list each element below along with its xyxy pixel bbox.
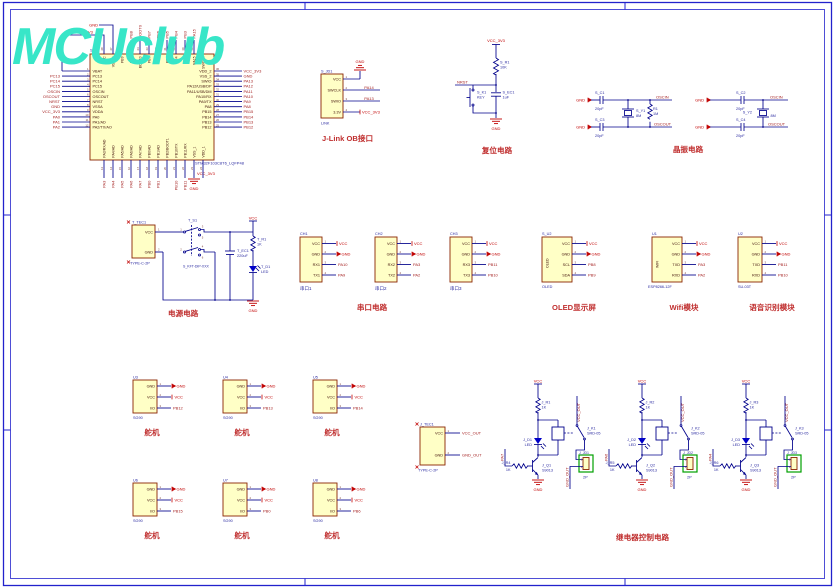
pin-name: RX3 <box>463 263 470 267</box>
pin-name: GND <box>145 250 154 254</box>
pin-number: 3 <box>340 404 342 408</box>
pin-name: RX2 <box>388 263 395 267</box>
servo-part: SG90 <box>223 519 233 523</box>
pin-number: 3 <box>765 260 767 264</box>
transistor-icon <box>527 458 538 476</box>
gnd-arrow-icon <box>587 252 590 257</box>
net-label: PB10 <box>173 180 178 191</box>
pin-name: VCC <box>237 498 245 502</box>
transistor-designator: J_Q3 <box>750 464 759 468</box>
pin-number: 1 <box>250 485 252 489</box>
pin-name: VSSA <box>93 105 104 109</box>
pin-name: VCC <box>145 230 153 234</box>
cap-value: 220uF <box>237 254 248 258</box>
net-label: PA4 <box>110 180 115 188</box>
net-label: VCC <box>339 241 348 246</box>
pin-number: 26 <box>216 118 220 122</box>
connector-designator: J_JD1 <box>579 451 589 455</box>
cap-designator: S_C4 <box>736 118 746 122</box>
cap-designator: T_EC1 <box>237 249 249 253</box>
resistor-designator: J_R2 <box>646 401 655 405</box>
pin-number: 2 <box>575 250 577 254</box>
pin-name: GND <box>672 252 681 256</box>
relay-part: SRD-05 <box>587 432 601 436</box>
net-label: GND <box>492 251 501 256</box>
pin-name: GND <box>462 252 471 256</box>
pin-number: 30 <box>216 98 220 102</box>
pin-number: 3 <box>475 260 477 264</box>
pin-name: PC15 <box>93 85 103 89</box>
jlink-pin-1: VCC 1 GND <box>333 59 366 81</box>
pin-number: 3 <box>160 507 162 511</box>
pin-name: PA7/AD <box>139 145 143 158</box>
led-designator: J_D2 <box>627 438 636 442</box>
pin-name: PB11/RX <box>184 143 188 158</box>
net-label: OSCOUT <box>654 121 672 126</box>
pin-number: 4 <box>685 271 687 275</box>
wifi-part: ESP8266-12F <box>648 285 673 289</box>
pin-name: TX1 <box>313 273 320 277</box>
servo-title: 舵机 <box>144 530 160 540</box>
gnd-arrow-icon <box>588 98 591 103</box>
servo-connector: U5 GND VCC I/O 1 2 3 GND VCC PB14 SG90 舵… <box>313 376 366 438</box>
pin-number: 1 <box>160 382 162 386</box>
relay-part: SRD-05 <box>795 432 809 436</box>
jlink-block: S_JD1 LINK VCC 1 GND SWCLK 2 PA14 SWIO 3… <box>321 59 381 143</box>
pin-name: OSCOUT <box>93 95 110 99</box>
resistor-value: 1K <box>714 468 719 472</box>
serial-connectors: CH1 VCC GND RX1 TX1 1 2 3 4 VCC GND PA10… <box>300 232 501 292</box>
pin-name: VCC <box>147 498 155 502</box>
resistor-value: 1M <box>653 112 658 116</box>
pin-name: GND <box>237 384 246 388</box>
serial-block: CH1 VCC GND RX1 TX1 1 2 3 4 VCC GND PA10… <box>300 232 501 312</box>
servo-part: SG90 <box>133 416 143 420</box>
relay-title: 继电器控制电路 <box>616 532 670 542</box>
net-label: PA6 <box>128 180 133 188</box>
connector-value: 2P <box>687 476 692 480</box>
pin-number: 10 <box>85 113 89 117</box>
pin-name: GND <box>435 453 444 457</box>
relay-coil-icon <box>760 427 772 440</box>
net-label: PB0 <box>263 508 271 513</box>
servo-designator: U7 <box>223 479 228 483</box>
gnd-symbol-icon <box>636 480 648 485</box>
net-label: PB6 <box>353 508 361 513</box>
relay-channel: VCC J_R3 1K J_D3 LED VCC_OUT J_K3 SRD-05 <box>708 379 809 493</box>
serial-connector: CH2 VCC GND RX2 TX2 1 2 3 4 VCC GND PA3 … <box>375 232 426 292</box>
pin-name: GND <box>752 252 761 256</box>
pin-name: I/O <box>330 406 335 410</box>
net-label: VCC_OUT <box>680 402 685 422</box>
pin-name: VCC <box>672 242 680 246</box>
pin-number: 2 <box>448 451 450 455</box>
resistor-icon <box>640 398 644 413</box>
net-label: GND <box>342 251 351 256</box>
net-label: PA6 <box>604 453 609 461</box>
jlink-title: J-Link OB接口 <box>322 133 373 143</box>
pin-number: 24 <box>199 166 203 170</box>
net-label: VCC <box>265 497 274 502</box>
net-label: PB11 <box>488 262 498 267</box>
net-label: VCC <box>589 241 598 246</box>
x-marker-icon <box>416 423 419 426</box>
pin-number: 3 <box>250 404 252 408</box>
oled-block: S_U2 OLED VCC GND SCL SDA 1 2 3 4 VCC GN… <box>542 232 601 312</box>
servo-designator: U5 <box>313 376 318 380</box>
pin-number: 4 <box>765 271 767 275</box>
relay-part: SRD-05 <box>691 432 705 436</box>
vcc-net-label: VCC_3V3 <box>197 171 216 176</box>
mcu-bottom-power: GND VCC_3V3 <box>188 171 216 191</box>
net-label: VCC_3V3 <box>362 109 381 114</box>
pin-name: VCC <box>327 498 335 502</box>
pin-number: 1 <box>250 382 252 386</box>
pin-name: GND <box>562 252 571 256</box>
net-label: GND <box>357 383 366 388</box>
gnd-net-label: GND <box>695 124 704 129</box>
typec-part: TYPE-C-2P <box>130 262 150 266</box>
x-marker-icon <box>416 466 419 469</box>
gnd-symbol-icon <box>354 65 366 70</box>
net-label: PA3 <box>698 262 706 267</box>
transistor-part: S9013 <box>646 469 657 473</box>
cap-value: 20pF <box>595 107 604 111</box>
pin-number: 3 <box>575 260 577 264</box>
servo-part: SG90 <box>223 416 233 420</box>
voice-part: SU-03T <box>738 285 752 289</box>
connector-designator: J_JD3 <box>787 451 797 455</box>
servo-designator: U6 <box>133 479 138 483</box>
connector-designator: CH2 <box>375 232 383 236</box>
crystal-right: GND S_C2 20pF OSCIN GND S_C4 20pF OSCOUT… <box>695 91 788 138</box>
pin-number: 2 <box>158 248 160 252</box>
pin-number: 3 <box>250 507 252 511</box>
net-label: PA10 <box>338 262 348 267</box>
pin-name: VCC <box>333 77 341 81</box>
led-icon <box>534 438 546 449</box>
net-label: PB9 <box>588 272 596 277</box>
cap-designator: S_C1 <box>595 91 605 95</box>
pin-name: VDDA <box>93 110 104 114</box>
resistor-icon <box>251 236 255 251</box>
relay-connector-body <box>583 458 589 470</box>
resistor-icon <box>720 464 736 468</box>
connector-designator: CH3 <box>450 232 458 236</box>
typec-designator: T_TEC1 <box>132 221 146 225</box>
resistor-value: 1K <box>542 406 547 410</box>
crystal-value: 8M <box>636 114 641 118</box>
gnd-symbol-icon <box>247 301 259 306</box>
gnd-arrow-icon <box>487 252 490 257</box>
voice-designator: U2 <box>738 232 743 236</box>
pin-number: 25 <box>216 123 220 127</box>
jlink-part: LINK <box>321 121 330 125</box>
pin-number: 34 <box>216 77 220 81</box>
gnd-arrow-icon <box>337 252 340 257</box>
gnd-net-label: GND <box>576 97 585 102</box>
servo-connector: U4 GND VCC I/O 1 2 3 GND VCC PB13 SG90 舵… <box>223 376 276 438</box>
gnd-arrow-icon <box>262 487 265 492</box>
servo-designator: U3 <box>133 376 138 380</box>
pin-name: VCC <box>387 242 395 246</box>
led-icon <box>249 266 261 273</box>
gnd-net-label: GND <box>638 487 647 492</box>
vcc-net-label: VCC <box>249 216 258 221</box>
net-label: PA4 <box>708 453 713 461</box>
pin-name: VCC <box>462 242 470 246</box>
gnd-net-label: GND <box>356 59 365 64</box>
led-designator: J_D3 <box>731 438 740 442</box>
net-label: GND_OUT <box>668 467 673 487</box>
transistor-icon <box>631 458 642 476</box>
pin-name: PA11/USB/DM <box>187 90 212 94</box>
resistor-icon <box>494 58 499 75</box>
pin-number: 3 <box>685 260 687 264</box>
servo-connector: U6 GND VCC I/O 1 2 3 GND VCC PB15 SG90 舵… <box>133 479 186 541</box>
pin-name: VCC <box>237 395 245 399</box>
connector-label: 串口3 <box>450 286 462 292</box>
pin-number: 1 <box>180 228 182 232</box>
servo-connector: U8 GND VCC I/O 1 2 3 GND VCC PB6 SG90 舵机 <box>313 479 366 541</box>
gnd-arrow-icon <box>588 125 591 130</box>
pin-name: GND <box>327 487 336 491</box>
servo-row-1: U3 GND VCC I/O 1 2 3 GND VCC PB12 SG90 舵… <box>133 376 366 438</box>
pin-name: PB0/AD <box>148 145 152 158</box>
x-marker-icon <box>127 221 130 224</box>
transistor-designator: J_Q2 <box>646 464 655 468</box>
pin-number: 6 <box>202 256 204 260</box>
pin-name: I/O <box>330 509 335 513</box>
resistor-designator: J_R3 <box>750 401 759 405</box>
pin-number: 16 <box>127 166 131 170</box>
pin-name: VSS_1 <box>193 147 197 158</box>
net-label: PA13 <box>364 96 374 101</box>
pin-number: 1 <box>765 239 767 243</box>
pin-name: VCC <box>312 242 320 246</box>
pin-number: 1 <box>158 228 160 232</box>
net-label: GND_OUT <box>462 452 482 457</box>
net-label: GND_OUT <box>772 467 777 487</box>
serial-title: 串口电路 <box>357 302 388 312</box>
switch-part: S_KFT-DIP-XXX <box>183 265 210 269</box>
pin-number: 2 <box>340 393 342 397</box>
pin-number: 2 <box>180 248 182 252</box>
resistor-designator: T_R1 <box>257 238 266 242</box>
connector-value: 2P <box>791 476 796 480</box>
power-title: 电源电路 <box>168 308 199 318</box>
net-label: PA7 <box>137 180 142 188</box>
servo-part: SG90 <box>313 416 323 420</box>
gnd-net-label: GND <box>742 487 751 492</box>
net-label: VCC_OUT <box>462 430 482 435</box>
vcc-net-label: VCC <box>638 379 647 384</box>
pin-name: PC14 <box>93 80 103 84</box>
pin-name: SCL <box>563 263 570 267</box>
net-label: VCC <box>699 241 708 246</box>
net-label: VCC <box>489 241 498 246</box>
pin-number: 2 <box>160 393 162 397</box>
pin-number: 2 <box>340 496 342 500</box>
crystal-left: GND S_C1 20pF OSCIN GND S_C3 20pF OSCOUT… <box>576 91 672 138</box>
resistor-icon <box>536 398 540 413</box>
oled-title: OLED显示屏 <box>552 303 596 312</box>
pin-name: VCC <box>752 242 760 246</box>
crystal-title: 晶振电路 <box>673 144 704 154</box>
net-label: PA3 <box>101 180 106 188</box>
pin-name: PA9/TX <box>199 100 212 104</box>
pin-name: SWIO <box>331 99 341 103</box>
resistor-designator: S_R1 <box>500 61 510 65</box>
wifi-vertical-label: WIFI <box>656 261 660 268</box>
net-label: PB11 <box>182 180 187 190</box>
pin-name: PA12/USB/DP <box>187 85 212 89</box>
connector-value: 2P <box>583 476 588 480</box>
switch-designator: T_S1 <box>188 219 197 223</box>
gnd-net-label: GND <box>695 97 704 102</box>
pin-name: PB2/BOOT1 <box>166 138 170 158</box>
gnd-arrow-icon <box>262 384 265 389</box>
pin-number: 27 <box>216 113 220 117</box>
pin-name: NRST <box>93 100 104 104</box>
pin-number: 3 <box>340 507 342 511</box>
pin-name: SWCLK <box>327 88 341 92</box>
typec-part: TYPE-C-2P <box>418 469 438 473</box>
resistor-icon <box>744 398 748 413</box>
net-label: PA2 <box>698 272 706 277</box>
mcu-part-label: STM32F103C8T6_LQFP48 <box>195 161 245 166</box>
net-label: GND <box>267 486 276 491</box>
gnd-arrow-icon <box>697 252 700 257</box>
net-label: PB14 <box>353 405 364 410</box>
net-label: PB15 <box>173 508 184 513</box>
connector-designator: J_JD2 <box>683 451 693 455</box>
jlink-designator: S_JD1 <box>321 70 332 74</box>
net-label: PB10 <box>488 272 499 277</box>
servo-designator: U8 <box>313 479 318 483</box>
pin-name: OSCIN <box>93 90 105 94</box>
pin-number: 1 <box>400 239 402 243</box>
pin-name: GND <box>327 384 336 388</box>
pin-name: TX2 <box>388 273 395 277</box>
key-value: KEY <box>477 96 485 100</box>
relay-designator: J_K1 <box>587 427 596 431</box>
pin-name: PA1/AD <box>93 120 106 124</box>
gnd-arrow-icon <box>172 487 175 492</box>
pin-number: 1 <box>346 75 348 79</box>
connector-designator: CH1 <box>300 232 308 236</box>
pin-number: 4 <box>400 271 402 275</box>
net-label: VCC <box>265 394 274 399</box>
cap-designator: S_EC1 <box>503 91 515 95</box>
pin-name: PB12 <box>202 126 211 130</box>
net-label: PA14 <box>364 85 374 90</box>
voice-block: U2 VCC GND TXD RXD 1 2 3 4 VCC GND PB11 … <box>738 232 795 312</box>
pin-number: 2 <box>160 496 162 500</box>
pin-number: 33 <box>216 83 220 87</box>
vcc-net-label: VCC <box>742 379 751 384</box>
net-label: GND <box>177 383 186 388</box>
gnd-net-label: GND <box>492 126 501 131</box>
relay-typec-block: J_TEC1 TYPE-C-2P VCC GND 1 2 VCC_OUT GND… <box>416 423 483 473</box>
transistor-icon <box>735 458 746 476</box>
crystal-value: 8M <box>771 114 776 118</box>
pin-number: 3 <box>325 260 327 264</box>
pin-number: 2 <box>346 86 348 90</box>
serial-connector: CH3 VCC GND RX3 TX3 1 2 3 4 VCC GND PB11… <box>450 232 501 292</box>
pin-name: VCC <box>435 431 443 435</box>
servo-row-2: U6 GND VCC I/O 1 2 3 GND VCC PB15 SG90 舵… <box>133 479 366 541</box>
net-label: VCC <box>175 394 184 399</box>
vcc-net-label: VCC <box>534 379 543 384</box>
pin-number: 2 <box>250 393 252 397</box>
pin-number: 32 <box>216 88 220 92</box>
net-label: PB8 <box>588 262 596 267</box>
serial-connector: CH1 VCC GND RX1 TX1 1 2 3 4 VCC GND PA10… <box>300 232 351 292</box>
pin-number: 2 <box>250 496 252 500</box>
relay-channels: VCC J_R1 1K J_D1 LED VCC_OUT J_K1 SRD-05 <box>500 379 809 493</box>
net-label: VCC <box>355 394 364 399</box>
relay-channel: VCC J_R2 1K J_D2 LED VCC_OUT J_K2 SRD-05 <box>604 379 705 493</box>
servo-title: 舵机 <box>234 530 250 540</box>
pin-number: 1 <box>340 382 342 386</box>
transistor-part: S9013 <box>542 469 553 473</box>
net-label: PB12 <box>173 405 184 410</box>
gnd-arrow-icon <box>352 384 355 389</box>
pin-number: 12 <box>85 123 89 127</box>
power-block: T_TEC1 TYPE-C-2P VCC GND 1 2 T_S1 S_KFT-… <box>127 216 270 319</box>
pin-number: 4 <box>346 108 348 112</box>
relay-coil-icon <box>656 427 668 440</box>
gnd-symbol-icon <box>188 179 200 184</box>
net-label: PB1 <box>155 180 160 188</box>
pin-name: PA8 <box>205 105 212 109</box>
pin-number: 11 <box>86 118 89 122</box>
pin-name: I/O <box>240 509 245 513</box>
net-label: OSCIN <box>656 94 669 99</box>
relay-coil-icon <box>552 427 564 440</box>
pin-name: PB1/AD <box>157 145 161 158</box>
pin-name: VCC <box>327 395 335 399</box>
net-label: PA2 <box>413 272 421 277</box>
pin-name: PB13 <box>202 120 211 124</box>
wifi-title: Wifi模块 <box>669 302 698 312</box>
oled-designator: S_U2 <box>542 232 552 236</box>
cap-designator: S_C3 <box>595 118 605 122</box>
gnd-symbol-icon <box>532 480 544 485</box>
pin-number: 2 <box>765 250 767 254</box>
pin-number: 2 <box>475 250 477 254</box>
gnd-net-label: GND <box>576 124 585 129</box>
cap-value: 20pF <box>595 134 604 138</box>
net-label: GND <box>177 486 186 491</box>
gnd-net-label: GND <box>190 186 199 191</box>
servo-row-2-wrap: U6 GND VCC I/O 1 2 3 GND VCC PB15 SG90 舵… <box>133 479 366 541</box>
gnd-net-label: GND <box>534 487 543 492</box>
resistor-icon <box>616 464 632 468</box>
pin-name: GND <box>147 487 156 491</box>
gnd-symbol-icon <box>740 480 752 485</box>
pin-number: 21 <box>172 166 176 170</box>
typec-designator: J_TEC1 <box>420 423 434 427</box>
pin-name: PB10/TX <box>175 143 179 158</box>
gnd-arrow-icon <box>707 98 710 103</box>
net-label: VCC_OUT <box>576 402 581 422</box>
resistor-value: 1K <box>750 406 755 410</box>
pin-name: VDD_1 <box>202 146 206 157</box>
pin-name: PA2/TX/AO <box>93 126 112 130</box>
relay-connector-body <box>791 458 797 470</box>
